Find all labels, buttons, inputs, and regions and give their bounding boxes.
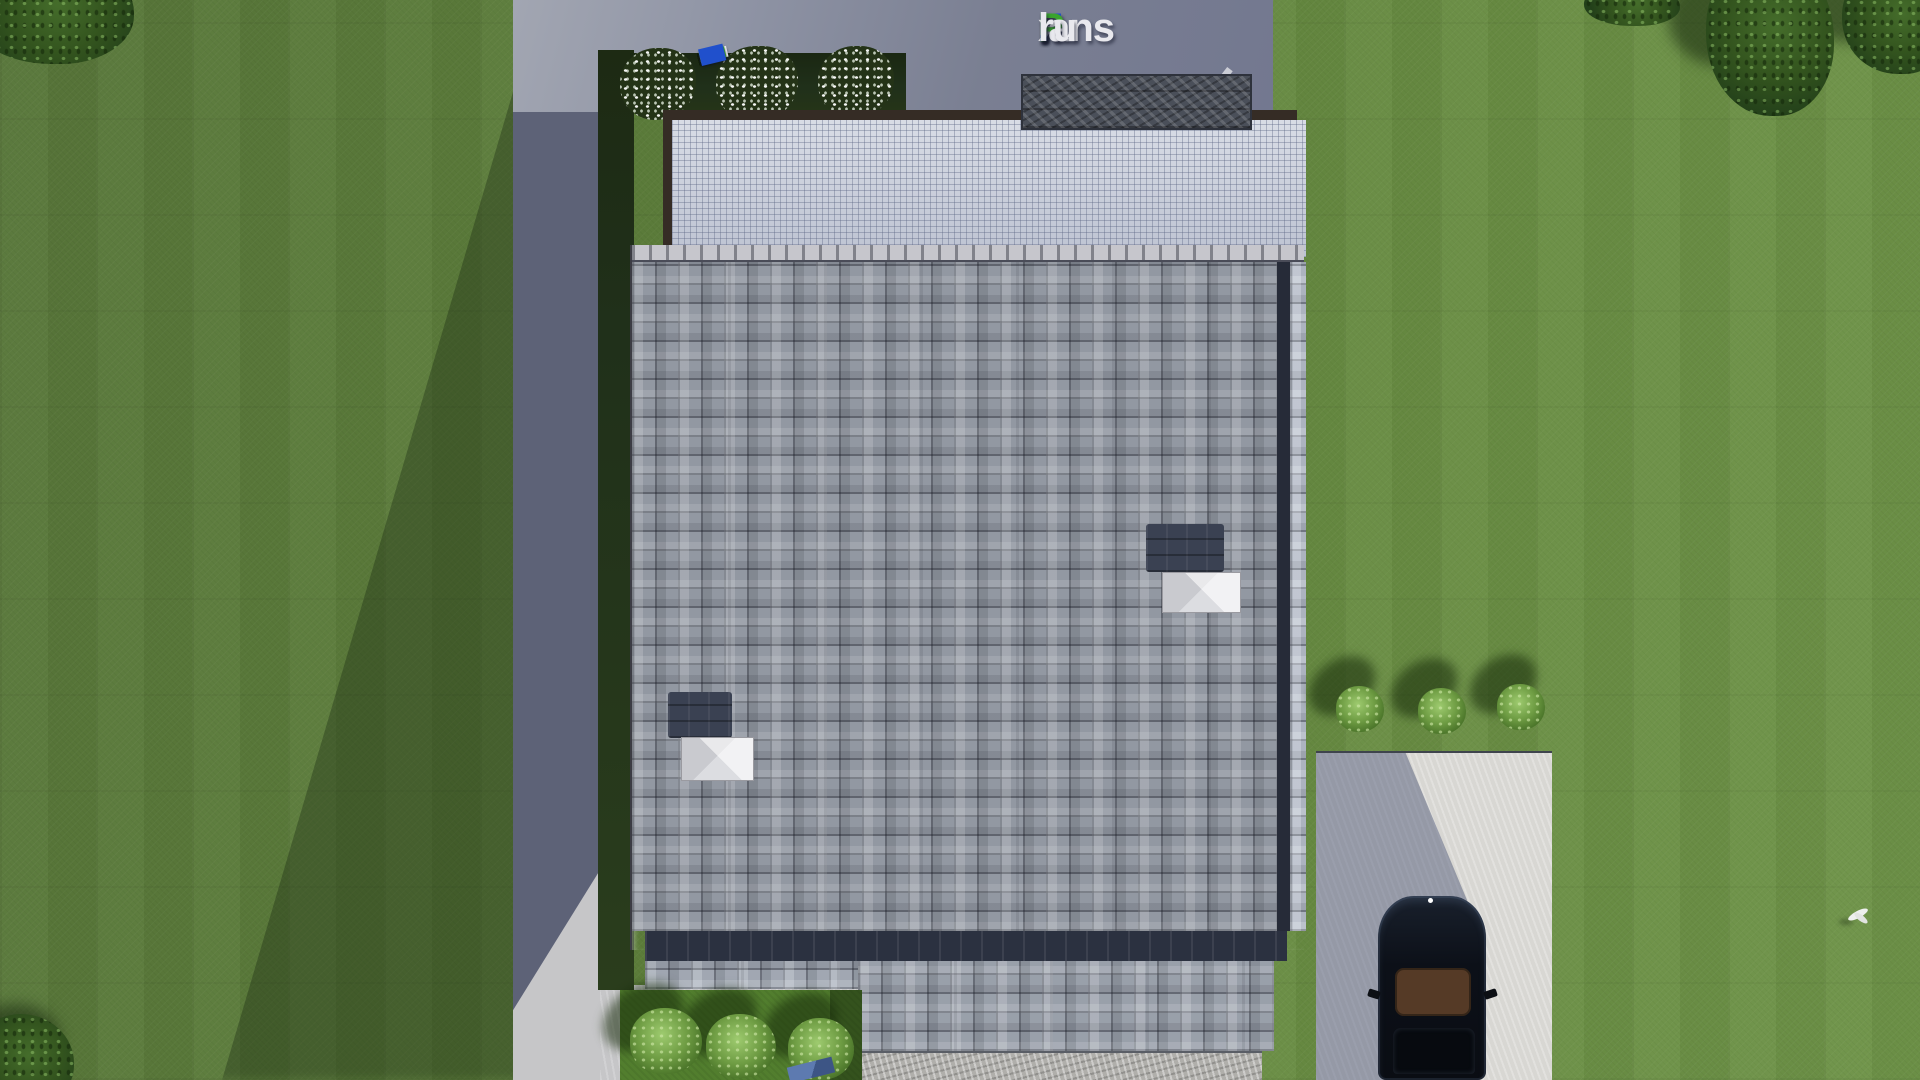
fixplans-watermark: FixPlans.ru (1038, 6, 1338, 54)
roof-right-channel (1277, 262, 1290, 931)
bird (1845, 905, 1875, 929)
lower-roof-edge (645, 961, 858, 989)
roof-ridge-cap (632, 245, 1304, 262)
stone-wall (1021, 74, 1252, 130)
car-rear-window (1393, 1028, 1475, 1074)
green-bush (706, 1014, 776, 1078)
path-shadow (513, 112, 600, 1080)
green-bush (1418, 688, 1466, 734)
green-bush (1336, 686, 1384, 732)
roof-eave-gutter (645, 931, 1287, 961)
shaded-planting-strip (598, 50, 634, 990)
roof-dark-patch (1146, 524, 1224, 572)
car-roof-patch (1395, 968, 1471, 1016)
pergola-canopy (663, 110, 1297, 247)
porch-roof (858, 961, 1274, 1051)
roof-dark-patch (668, 692, 732, 738)
skylight (681, 737, 754, 781)
car-antenna (1428, 898, 1433, 903)
skylight (1162, 572, 1241, 613)
roof-right-fascia (1290, 262, 1306, 931)
west-concrete-path (513, 112, 600, 1080)
stone-walkway (860, 1051, 1262, 1080)
green-bush (630, 1008, 702, 1074)
pergola-grid-surface (672, 120, 1306, 257)
aerial-house-render: FixPlans.ru (0, 0, 1920, 1080)
green-bush (1497, 684, 1545, 730)
watermark-letter: ru (1038, 6, 1076, 51)
